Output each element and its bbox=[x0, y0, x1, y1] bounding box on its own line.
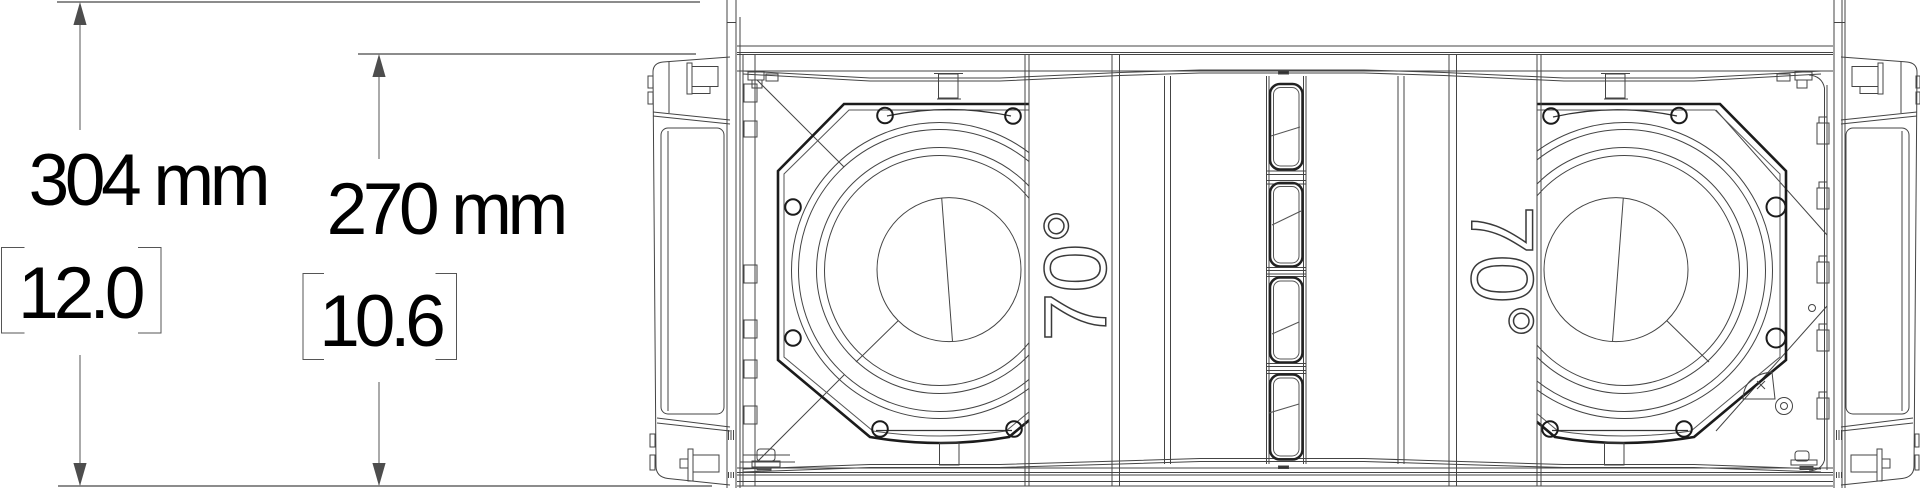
svg-text:70°: 70° bbox=[1025, 208, 1124, 341]
svg-text:70°: 70° bbox=[1453, 205, 1552, 338]
svg-text:12.0: 12.0 bbox=[18, 253, 146, 334]
svg-text:270 mm: 270 mm bbox=[327, 169, 569, 250]
svg-text:304 mm: 304 mm bbox=[29, 140, 271, 221]
svg-text:10.6: 10.6 bbox=[319, 281, 446, 362]
